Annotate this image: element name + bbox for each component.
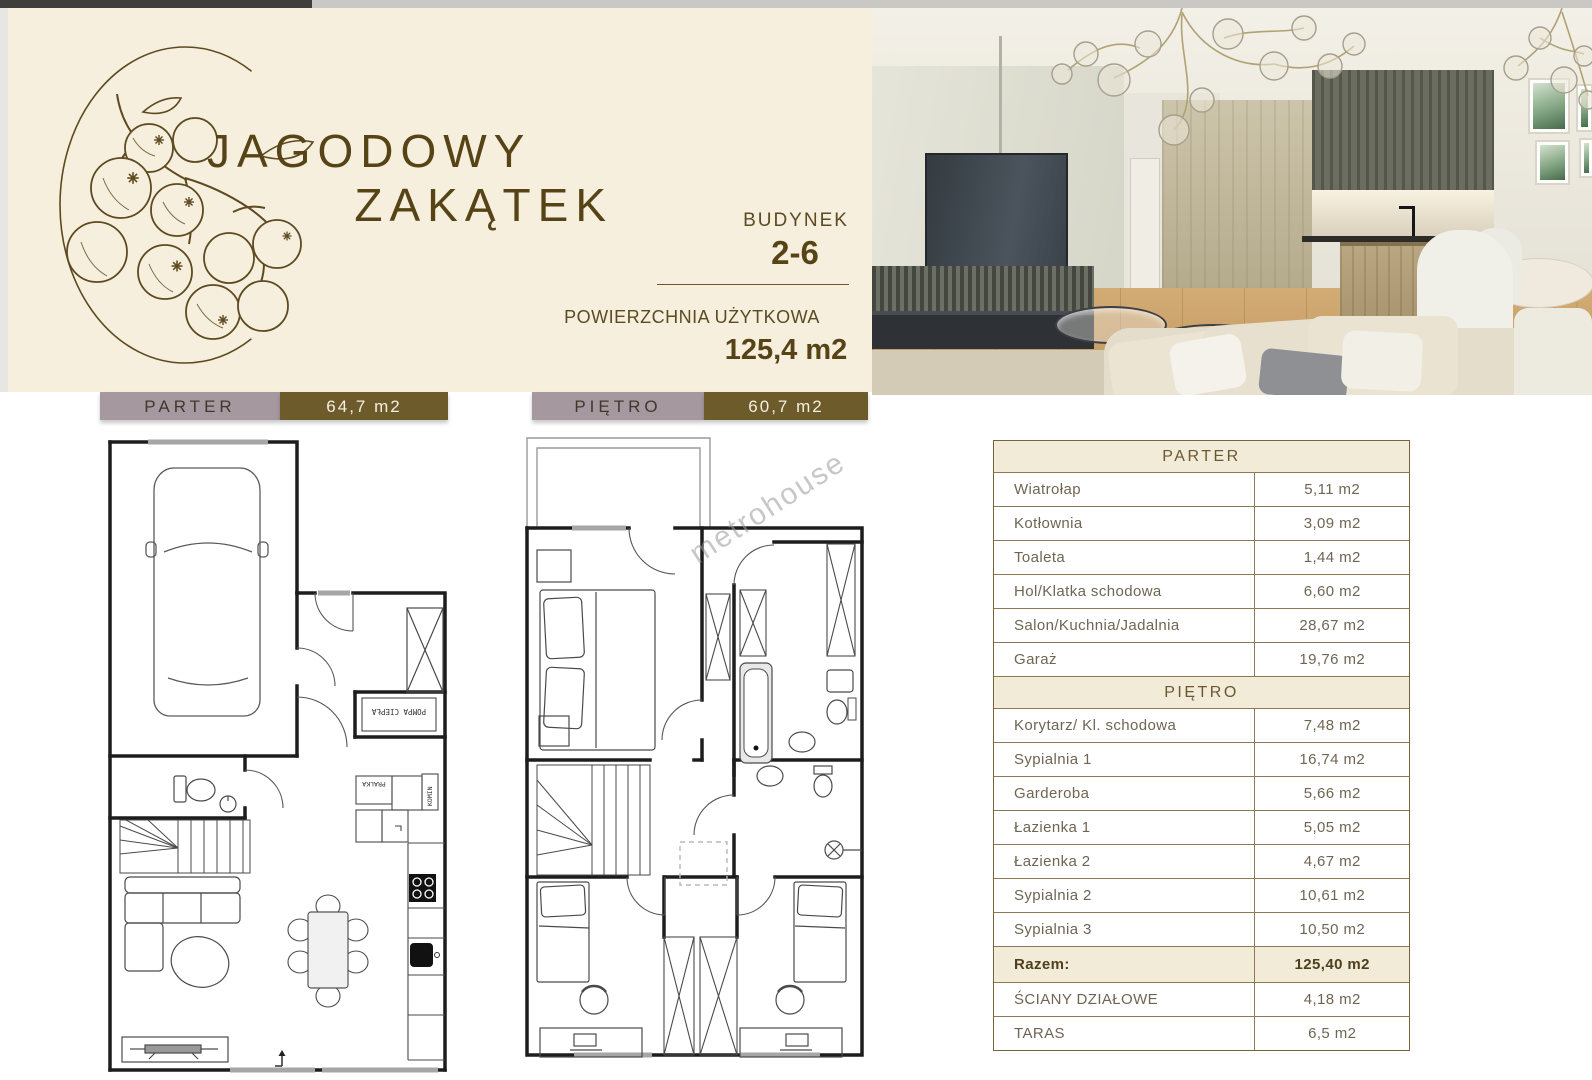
photo-pillow-white	[1341, 330, 1424, 392]
plan-door-swings	[245, 593, 353, 808]
row-label: Hol/Klatka schodowa	[994, 575, 1255, 608]
plan-kitchen	[356, 774, 445, 1060]
building-number: 2-6	[771, 234, 819, 272]
table-row: Korytarz/ Kl. schodowa 7,48 m2	[994, 708, 1409, 742]
table-row: Sypialnia 3 10,50 m2	[994, 912, 1409, 946]
brand-title-line1: JAGODOWY	[207, 124, 531, 178]
plan-coffee-table	[166, 930, 235, 993]
row-value: 10,61 m2	[1255, 879, 1409, 912]
row-value: 28,67 m2	[1255, 609, 1409, 642]
brand-title-line2: ZAKĄTEK	[207, 178, 613, 232]
total-value: 125,40 m2	[1255, 947, 1409, 982]
table-row: ŚCIANY DZIAŁOWE 4,18 m2	[994, 982, 1409, 1016]
row-label: ŚCIANY DZIAŁOWE	[994, 983, 1255, 1016]
plan-label-pompa: POMPA CIEPŁA	[371, 707, 426, 716]
top-edge-dark	[0, 0, 312, 8]
plan-entry-arrow	[275, 1050, 286, 1066]
row-label: Korytarz/ Kl. schodowa	[994, 709, 1255, 742]
plan-label-pralka: PRALKA	[362, 780, 386, 788]
plan-sofa	[125, 877, 240, 971]
interior-photo	[872, 8, 1592, 395]
floor-tag-parter-area: 64,7 m2	[280, 392, 448, 420]
table-row: Sypialnia 1 16,74 m2	[994, 742, 1409, 776]
row-value: 4,67 m2	[1255, 845, 1409, 878]
floor-plan-parter: POMPA CIEPŁA	[100, 430, 456, 1080]
table-row: Sypialnia 2 10,61 m2	[994, 878, 1409, 912]
plan-tv-bench	[122, 1037, 228, 1062]
table-row: Łazienka 1 5,05 m2	[994, 810, 1409, 844]
plan-car	[146, 468, 268, 716]
plan-bedroom3	[740, 882, 846, 1057]
row-label: Sypialnia 2	[994, 879, 1255, 912]
plan-bed-double	[537, 550, 655, 750]
building-divider	[657, 284, 849, 285]
photo-faucet-spout	[1399, 206, 1415, 209]
plan-bathroom2	[757, 766, 862, 859]
row-value: 10,50 m2	[1255, 913, 1409, 946]
plan-dining-set	[288, 895, 368, 1007]
property-flyer: JAGODOWY ZAKĄTEK BUDYNEK 2-6 POWIERZCHNI…	[0, 0, 1592, 1080]
row-value: 5,66 m2	[1255, 777, 1409, 810]
plan-cooktop	[409, 874, 436, 902]
plan-hall-wardrobe	[407, 608, 443, 692]
area-table: PARTER Wiatrołap 5,11 m2 Kotłownia 3,09 …	[993, 440, 1410, 1051]
top-edge-light	[312, 0, 1592, 8]
floor-tag-pietro-area: 60,7 m2	[704, 392, 868, 420]
plan-toilet	[174, 776, 236, 812]
plan-center-wardrobes	[664, 937, 737, 1055]
floor-tag-parter-name: PARTER	[100, 392, 280, 420]
plan-stairs	[537, 765, 650, 875]
row-value: 16,74 m2	[1255, 743, 1409, 776]
photo-rug	[872, 350, 1120, 395]
photo-faucet	[1412, 206, 1415, 236]
row-label: Łazienka 2	[994, 845, 1255, 878]
row-label: Sypialnia 1	[994, 743, 1255, 776]
table-row: Salon/Kuchnia/Jadalnia 28,67 m2	[994, 608, 1409, 642]
table-row: Garderoba 5,66 m2	[994, 776, 1409, 810]
row-label: TARAS	[994, 1017, 1255, 1050]
plan-walls	[110, 442, 445, 1070]
plan-windows	[572, 528, 820, 1055]
row-value: 5,05 m2	[1255, 811, 1409, 844]
row-label: Garaż	[994, 643, 1255, 676]
row-label: Salon/Kuchnia/Jadalnia	[994, 609, 1255, 642]
row-value: 4,18 m2	[1255, 983, 1409, 1016]
table-row: Toaleta 1,44 m2	[994, 540, 1409, 574]
row-value: 6,5 m2	[1255, 1017, 1409, 1050]
total-label: Razem:	[994, 947, 1255, 982]
table-row: Kotłownia 3,09 m2	[994, 506, 1409, 540]
row-value: 1,44 m2	[1255, 541, 1409, 574]
floor-plan-pietro	[512, 430, 870, 1062]
photo-pillow-gray	[1258, 348, 1350, 395]
row-value: 19,76 m2	[1255, 643, 1409, 676]
row-value: 3,09 m2	[1255, 507, 1409, 540]
plan-bathroom1	[740, 663, 856, 763]
photo-chandelier	[872, 8, 1592, 198]
plan-stairs	[120, 820, 250, 873]
row-label: Toaleta	[994, 541, 1255, 574]
table-row: TARAS 6,5 m2	[994, 1016, 1409, 1050]
table-section-header-pietro: PIĘTRO	[994, 676, 1409, 708]
row-value: 6,60 m2	[1255, 575, 1409, 608]
table-total-row: Razem: 125,40 m2	[994, 946, 1409, 982]
row-value: 7,48 m2	[1255, 709, 1409, 742]
row-label: Kotłownia	[994, 507, 1255, 540]
row-label: Wiatrołap	[994, 473, 1255, 506]
row-label: Garderoba	[994, 777, 1255, 810]
table-section-header-parter: PARTER	[994, 441, 1409, 472]
photo-pillow-white	[1168, 332, 1248, 395]
row-value: 5,11 m2	[1255, 473, 1409, 506]
plan-sink	[410, 943, 440, 967]
header-banner: JAGODOWY ZAKĄTEK BUDYNEK 2-6 POWIERZCHNI…	[8, 8, 872, 392]
table-row: Wiatrołap 5,11 m2	[994, 472, 1409, 506]
plan-bedroom2	[537, 882, 642, 1057]
plan-wardrobes	[706, 544, 855, 680]
row-label: Łazienka 1	[994, 811, 1255, 844]
row-label: Sypialnia 3	[994, 913, 1255, 946]
usable-area-value: 125,4 m2	[725, 334, 848, 367]
plan-terrace	[527, 438, 710, 528]
usable-area-label: POWIERZCHNIA UŻYTKOWA	[564, 307, 820, 328]
plan-label-komin: KOMIN	[426, 786, 434, 806]
building-label: BUDYNEK	[743, 210, 849, 232]
left-edge	[0, 8, 8, 392]
table-row: Łazienka 2 4,67 m2	[994, 844, 1409, 878]
floor-tag-pietro-name: PIĘTRO	[532, 392, 704, 420]
table-row: Hol/Klatka schodowa 6,60 m2	[994, 574, 1409, 608]
table-row: Garaż 19,76 m2	[994, 642, 1409, 676]
photo-chaise	[1514, 308, 1592, 395]
